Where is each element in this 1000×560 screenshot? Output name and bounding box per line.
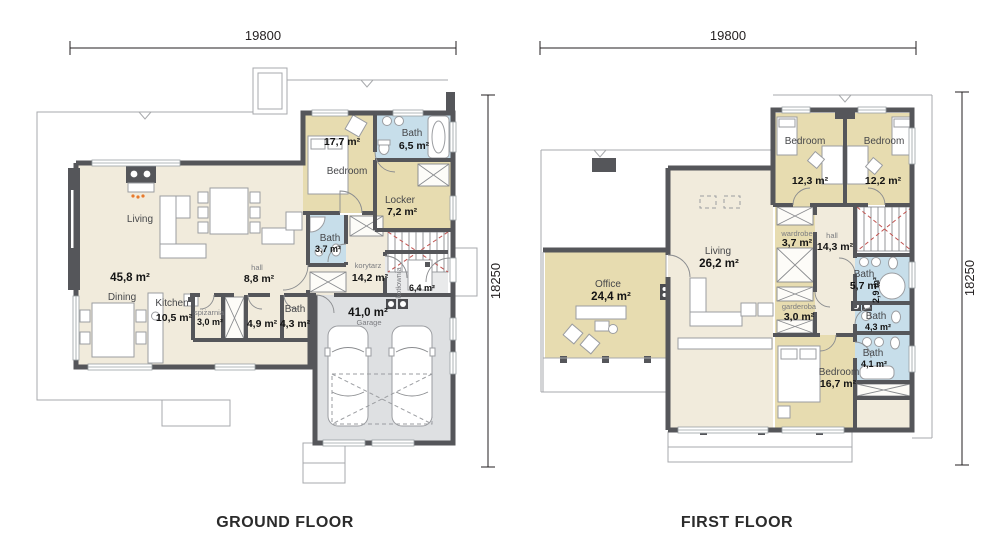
ff-bath-bottom-area: 4,1 m² xyxy=(861,359,887,369)
first-floor-caption: FIRST FLOOR xyxy=(681,514,793,532)
ff-living-name: Living xyxy=(705,246,731,257)
ground-floor-caption: GROUND FLOOR xyxy=(216,514,354,532)
gf-garage-name: Garage xyxy=(356,318,381,327)
first-floor-plan: Office 24,4 m² Living 26,2 m² Bedroom 12… xyxy=(541,95,932,462)
ff-width-dimension: 19800 xyxy=(710,28,746,43)
ff-wardrobe-area: 3,7 m² xyxy=(782,237,813,249)
ff-height-dimension: 18250 xyxy=(962,260,977,296)
ff-office-area: 24,4 m² xyxy=(591,291,631,303)
ground-floor-plan: Living 45,8 m² Dining Kitchen 10,5 m² sp… xyxy=(37,68,477,483)
gf-boiler-area: 6,4 m² xyxy=(409,283,435,293)
gf-kitchen-name: Kitchen xyxy=(155,298,188,309)
gf-bedroom-name: Bedroom xyxy=(327,166,368,177)
gf-locker-area: 7,2 m² xyxy=(387,206,418,218)
dining-table-icon xyxy=(198,188,260,234)
gf-width-dimension: 19800 xyxy=(245,28,281,43)
gf-bath-main-area: 6,5 m² xyxy=(399,140,430,152)
entry-door-gap xyxy=(450,258,456,282)
gf-kitchen-area: 10,5 m² xyxy=(156,312,193,324)
ff-bedroom-left-area: 12,3 m² xyxy=(792,175,829,187)
gf-pantry-area: 3,0 m² xyxy=(197,317,223,327)
ff-bath-bottom-name: Bath xyxy=(863,348,884,359)
ff-bath-mid-name: Bath xyxy=(866,311,887,322)
floor-plan-drawing: 19800 19800 18250 18250 xyxy=(0,0,1000,560)
gf-wc-area: 4,9 m² xyxy=(247,318,278,330)
ff-dressing-area: 3,0 m² xyxy=(784,311,815,323)
gf-hall-area: 8,8 m² xyxy=(244,273,275,285)
stairs2-icon xyxy=(857,207,912,251)
gf-pantry-name: spiżarnia xyxy=(194,308,225,317)
ff-bedroom-bottom-area: 16,7 m² xyxy=(820,378,857,390)
ff-bedroom-bottom-name: Bedroom xyxy=(819,367,860,378)
gf-hall-name: hall xyxy=(251,263,263,272)
gf-bath-guest-name: Bath xyxy=(320,233,341,244)
ff-hall-area: 14,3 m² xyxy=(817,241,854,253)
ff-bath-mid-area: 4,3 m² xyxy=(865,322,891,332)
gf-corridor-area: 14,2 m² xyxy=(352,272,389,284)
ff-store-area: 2,9 m² xyxy=(871,277,881,303)
gf-boiler-name: kotłownia xyxy=(394,267,403,299)
gf-bath-small-area: 4,3 m² xyxy=(280,318,311,330)
gf-corridor-name: korytarz xyxy=(355,261,382,270)
gf-dining-name: Dining xyxy=(108,292,136,303)
ff-office-name: Office xyxy=(595,279,621,290)
ff-hall-name: hall xyxy=(826,231,838,240)
gf-bath-guest-area: 3,7 m² xyxy=(315,244,341,254)
ff-bedroom-left-name: Bedroom xyxy=(785,136,826,147)
floor-plan-sheet: 19800 19800 18250 18250 xyxy=(0,0,1000,560)
ff-bedroom-right-name: Bedroom xyxy=(864,136,905,147)
gf-living-area: 45,8 m² xyxy=(110,272,150,284)
gf-living-name: Living xyxy=(127,214,153,225)
gf-bath-small-name: Bath xyxy=(285,304,306,315)
ff-living-area: 26,2 m² xyxy=(699,258,739,270)
gf-bath-main-name: Bath xyxy=(402,128,423,139)
gf-locker-name: Locker xyxy=(385,195,416,206)
ff-bedroom-right-area: 12,2 m² xyxy=(865,175,902,187)
ff-dressing-name: garderoba xyxy=(782,302,817,311)
gf-height-dimension: 18250 xyxy=(488,263,503,299)
gf-bedroom-area: 17,7 m² xyxy=(324,136,361,148)
